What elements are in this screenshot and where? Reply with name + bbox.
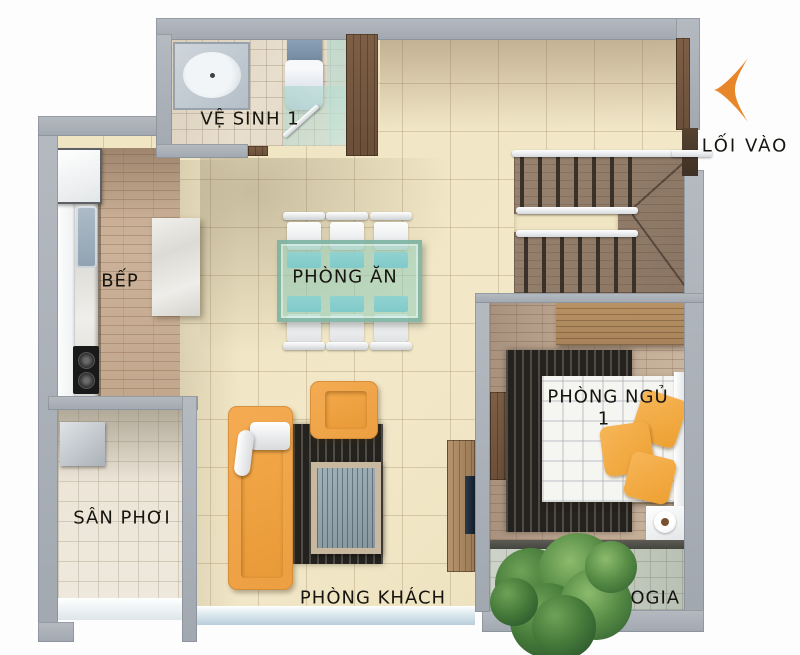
fridge xyxy=(55,148,102,204)
stove xyxy=(73,346,99,394)
room-label-living: PHÒNG KHÁCH xyxy=(300,588,446,609)
entrance-label: LỐI VÀO xyxy=(702,136,789,157)
hall-cabinet xyxy=(346,34,378,156)
wall xyxy=(38,622,74,642)
nightstand xyxy=(646,506,684,540)
stair-flight-upper xyxy=(520,157,632,209)
wall xyxy=(182,396,197,642)
room-label-bedroom: PHÒNG NGỦ xyxy=(547,387,668,408)
stair-flight-lower xyxy=(524,237,642,293)
washing-machine xyxy=(60,422,105,466)
drying-yard-window xyxy=(58,598,182,620)
shower-tray xyxy=(173,42,250,110)
wall xyxy=(156,34,172,158)
wall xyxy=(475,293,490,612)
wardrobe xyxy=(556,303,684,345)
kitchen-sink xyxy=(76,206,97,268)
sofa xyxy=(228,406,293,590)
floor-plan: VỆ SINH 1 BẾP PHÒNG ĂN PHÒNG NGỦ 1 SÂN P… xyxy=(0,0,800,655)
entrance-arrow-icon xyxy=(712,58,750,122)
toilet-tank xyxy=(287,38,322,62)
bedroom-cabinet xyxy=(490,392,507,480)
room-label-kitchen: BẾP xyxy=(101,271,139,292)
wall xyxy=(38,116,58,642)
coffee-table xyxy=(311,462,381,554)
kitchen-counter xyxy=(55,198,75,398)
entry-door-frame xyxy=(676,38,690,130)
room-label-bedroom-number: 1 xyxy=(598,409,610,430)
wall xyxy=(156,144,248,158)
wall xyxy=(475,293,704,303)
kitchen-island xyxy=(152,218,200,316)
wall xyxy=(156,18,694,40)
sofa-blanket xyxy=(250,422,290,450)
room-label-dining: PHÒNG ĂN xyxy=(292,267,397,288)
stair-rail xyxy=(512,150,692,157)
wall xyxy=(48,396,198,410)
stair-rail xyxy=(516,230,638,237)
room-label-bathroom: VỆ SINH 1 xyxy=(200,109,299,130)
stair-rail xyxy=(516,207,638,214)
living-window xyxy=(197,606,475,625)
tv xyxy=(465,476,475,534)
plant xyxy=(490,533,640,655)
armchair xyxy=(310,381,378,439)
room-label-drying-yard: SÂN PHƠI xyxy=(73,508,170,529)
bathroom-door-sill xyxy=(248,146,268,156)
wall xyxy=(684,170,704,612)
staircase xyxy=(514,150,690,293)
wall xyxy=(38,116,164,136)
